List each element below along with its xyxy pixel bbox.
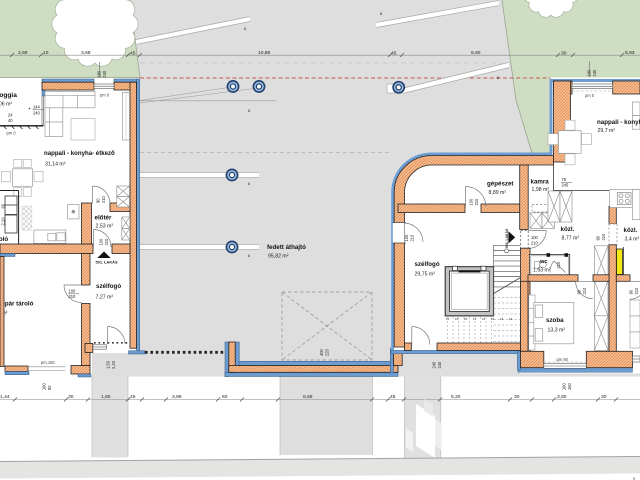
svg-text:90: 90 [577, 289, 582, 294]
svg-text:180: 180 [562, 382, 567, 390]
svg-text:210: 210 [104, 238, 109, 246]
svg-text:szélfogó: szélfogó [96, 283, 121, 290]
svg-text:8: 8 [248, 254, 250, 258]
svg-text:közl.: közl. [624, 227, 638, 234]
svg-text:30: 30 [68, 394, 74, 400]
svg-text:előtér: előtér [95, 215, 112, 222]
svg-text:2,69: 2,69 [18, 50, 28, 56]
svg-text:15: 15 [446, 317, 450, 321]
svg-text:90: 90 [629, 289, 634, 294]
svg-text:210: 210 [69, 294, 77, 299]
svg-text:15: 15 [455, 317, 459, 321]
svg-text:6,60: 6,60 [471, 50, 481, 56]
svg-text:8: 8 [380, 12, 382, 16]
svg-text:400: 400 [319, 348, 324, 356]
svg-text:240: 240 [33, 111, 41, 116]
svg-text:29,75 m²: 29,75 m² [415, 272, 436, 278]
svg-text:8: 8 [497, 76, 499, 80]
svg-text:100: 100 [69, 289, 77, 294]
svg-text:szoba: szoba [546, 317, 564, 324]
svg-text:8,77 m²: 8,77 m² [562, 235, 580, 241]
svg-text:pm 0: pm 0 [7, 131, 17, 136]
svg-text:90: 90 [96, 198, 101, 203]
svg-text:501. LAKÁS: 501. LAKÁS [96, 260, 118, 265]
svg-text:29,7 m²: 29,7 m² [598, 128, 616, 134]
svg-text:225: 225 [325, 348, 330, 356]
svg-text:45: 45 [390, 394, 396, 400]
svg-text:24: 24 [8, 113, 13, 118]
svg-text:30: 30 [514, 394, 520, 400]
svg-text:100: 100 [404, 234, 409, 242]
svg-text:60: 60 [1, 203, 6, 208]
svg-text:92: 92 [47, 385, 52, 390]
svg-text:13,3 m²: 13,3 m² [548, 327, 566, 333]
svg-text:210: 210 [531, 241, 539, 246]
svg-text:3,4 m²: 3,4 m² [625, 236, 640, 242]
svg-text:fedett áthajtó: fedett áthajtó [267, 244, 306, 251]
svg-text:45: 45 [130, 51, 136, 57]
svg-text:240: 240 [432, 361, 437, 369]
svg-text:31,14 m²: 31,14 m² [45, 162, 66, 168]
svg-text:7,27 m²: 7,27 m² [96, 295, 114, 301]
svg-text:15: 15 [464, 317, 468, 321]
svg-text:95,82 m²: 95,82 m² [268, 254, 289, 260]
svg-text:30: 30 [601, 394, 607, 400]
svg-text:15: 15 [509, 317, 513, 321]
svg-text:144: 144 [33, 105, 41, 110]
svg-text:8: 8 [248, 109, 250, 113]
svg-text:10: 10 [43, 50, 49, 56]
svg-text:10,88: 10,88 [258, 50, 271, 56]
svg-text:2,40: 2,40 [111, 360, 116, 369]
svg-text:5,20: 5,20 [451, 394, 461, 400]
svg-text:pm 0: pm 0 [585, 93, 595, 98]
svg-text:100: 100 [531, 235, 539, 240]
svg-text:150: 150 [567, 382, 572, 390]
svg-text:pm 0: pm 0 [100, 93, 110, 98]
svg-text:1,53 m²: 1,53 m² [533, 268, 551, 274]
svg-text:gépészet: gépészet [487, 180, 513, 187]
svg-text:8,89 m²: 8,89 m² [489, 190, 507, 196]
svg-text:30: 30 [561, 51, 567, 57]
svg-text:8: 8 [244, 27, 246, 31]
svg-text:1,50: 1,50 [106, 360, 111, 369]
svg-text:pm 90: pm 90 [557, 357, 569, 362]
svg-text:1,98 m²: 1,98 m² [532, 187, 550, 193]
svg-text:210: 210 [101, 195, 106, 203]
svg-text:15: 15 [500, 317, 504, 321]
svg-text:közl.: közl. [561, 226, 575, 233]
svg-text:loggia: loggia [0, 92, 17, 99]
svg-text:210: 210 [634, 287, 639, 295]
svg-text:60: 60 [222, 394, 228, 400]
svg-text:a: a [633, 477, 635, 480]
svg-text:240: 240 [592, 69, 597, 77]
svg-text:gépkocsipár tároló: gépkocsipár tároló [0, 301, 34, 308]
svg-text:75: 75 [562, 177, 567, 182]
svg-text:4,06 m²: 4,06 m² [0, 102, 12, 108]
svg-text:nappali - konyha- étkező: nappali - konyha- étkező [44, 150, 115, 157]
svg-text:6,59: 6,59 [303, 394, 313, 400]
svg-text:3,50: 3,50 [557, 394, 567, 400]
svg-text:210: 210 [582, 287, 587, 295]
svg-text:45: 45 [391, 51, 397, 57]
svg-text:8: 8 [248, 182, 250, 186]
svg-text:180: 180 [97, 70, 102, 78]
svg-text:40: 40 [8, 118, 13, 123]
svg-text:1,80: 1,80 [101, 394, 111, 400]
svg-text:210: 210 [601, 233, 606, 241]
svg-text:kamra: kamra [531, 178, 550, 185]
svg-text:245: 245 [562, 183, 570, 188]
svg-text:100: 100 [99, 238, 104, 246]
svg-text:tároló: tároló [0, 236, 8, 243]
svg-text:pm,150: pm,150 [41, 360, 55, 365]
svg-text:5,93: 5,93 [625, 50, 635, 56]
svg-text:180: 180 [42, 382, 47, 390]
svg-text:210: 210 [474, 198, 479, 206]
svg-text:2,53 m²: 2,53 m² [96, 224, 114, 230]
svg-text:szélfogó: szélfogó [415, 261, 440, 268]
svg-text:2,10: 2,10 [1, 217, 6, 226]
svg-text:wc: wc [539, 259, 547, 265]
svg-text:45: 45 [130, 394, 136, 400]
svg-text:90: 90 [596, 235, 601, 240]
svg-text:1,44: 1,44 [0, 394, 10, 400]
svg-text:240: 240 [102, 70, 107, 78]
svg-text:240: 240 [437, 361, 442, 369]
svg-text:3,68: 3,68 [81, 50, 91, 56]
svg-text:nappali - konyha: nappali - konyha [597, 119, 640, 126]
svg-text:180: 180 [587, 69, 592, 77]
svg-text:210: 210 [410, 234, 415, 242]
svg-text:15: 15 [482, 317, 486, 321]
svg-text:100: 100 [469, 198, 474, 206]
svg-text:3,69: 3,69 [172, 394, 182, 400]
